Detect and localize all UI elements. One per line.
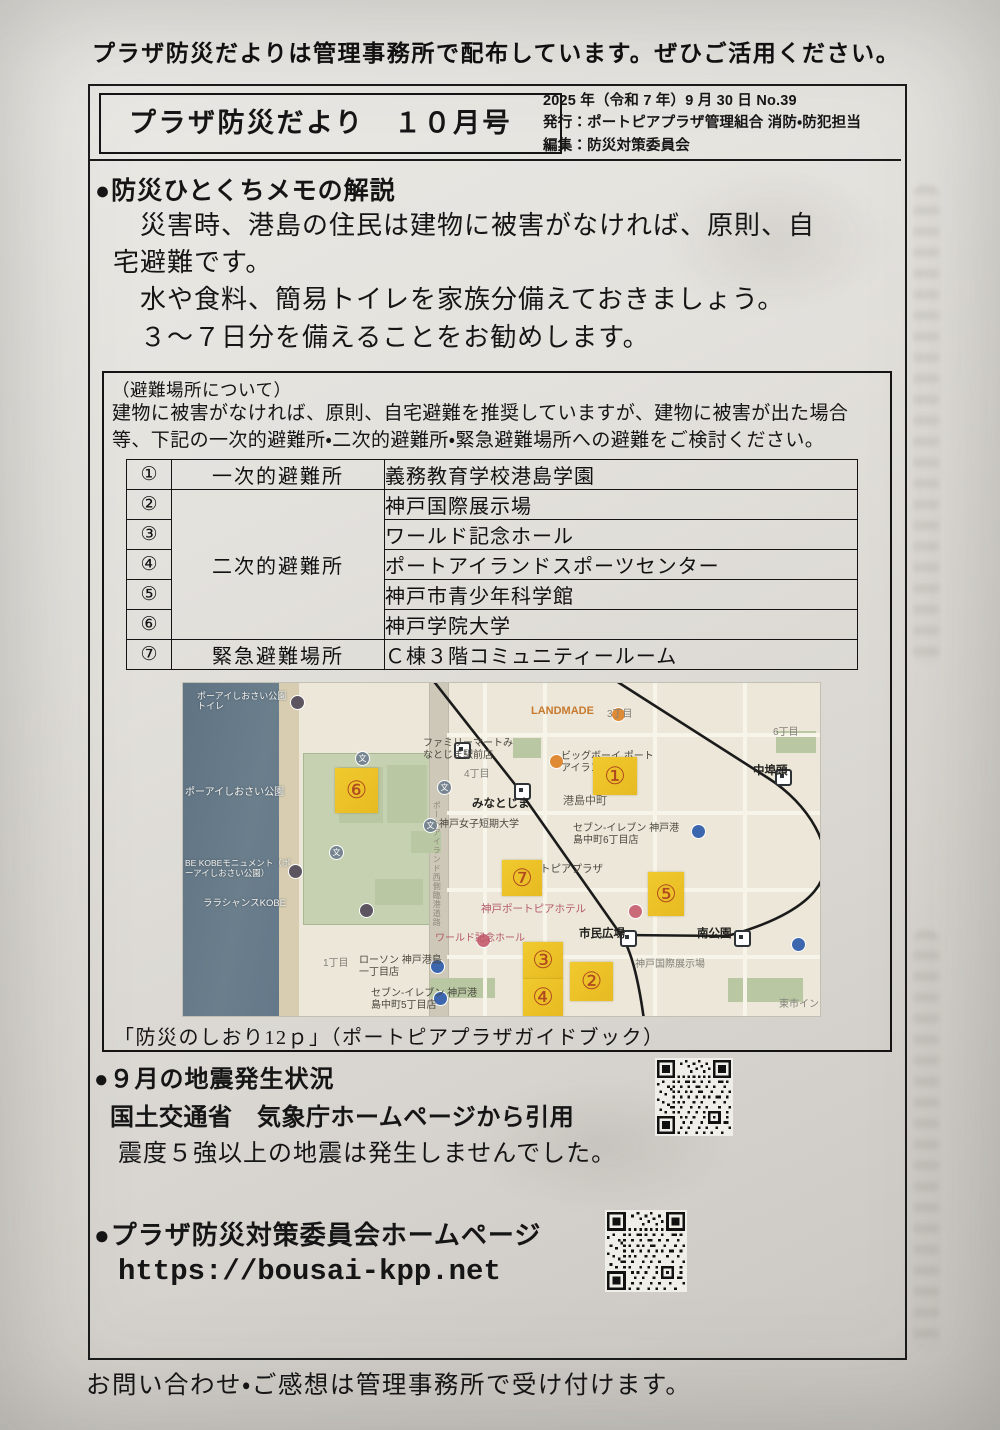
row-name: ワールド記念ホール: [385, 520, 858, 550]
map-label-shiosai-park: ポーアイしおさい公園: [185, 787, 284, 799]
newsletter-title: プラザ防災だより １０月号: [99, 93, 562, 154]
memo-line-1: 災害時、港島の住民は建物に被害がなければ、原則、自宅避難です。: [113, 207, 828, 281]
map-label-portopia-hotel: 神戸ポートピアホテル: [481, 903, 586, 915]
map-label-west-harbor-road: ポートアイランド西側臨港道路: [432, 801, 441, 961]
memo-line-3: ３～７日分を備えることをお勧めします。: [113, 319, 873, 356]
map-marker-7: ⑦: [502, 860, 542, 896]
row-number: ②: [127, 490, 172, 520]
row-category: 一次的避難所: [172, 460, 385, 490]
poi-icon: [791, 937, 806, 952]
row-number: ⑤: [127, 580, 172, 610]
qr-code-jma: [655, 1058, 733, 1136]
station-icon-minamikoen: [734, 930, 751, 947]
map-label-exhibition-hall: 神戸国際展示場: [635, 959, 705, 971]
portliner-rail-lines: [183, 683, 820, 1016]
evacuation-map: 文 文 文 文 ポーアイしおさい公園トイレ ポーアイしおさい公園 BE KOBE…: [183, 683, 820, 1016]
homepage-url: https://bousai-kpp.net: [118, 1255, 501, 1288]
memo-heading: ●防災ひとくちメモの解説: [95, 171, 396, 207]
earthquake-source: 国土交通省 気象庁ホームページから引用: [110, 1097, 574, 1132]
memo-line-2: 水や食料、簡易トイレを家族分備えておきましょう。: [113, 281, 873, 318]
evacuation-description: 建物に被害がなければ、原則、自宅避難を推奨していますが、建物に被害が出た場合等、…: [112, 401, 858, 455]
row-category: 二次的避難所: [172, 490, 385, 640]
map-label-4chome: 4丁目: [464, 769, 490, 781]
bleed-through-right-bottom: [913, 930, 939, 1350]
homepage-heading: ●プラザ防災対策委員会ホームページ: [94, 1215, 541, 1252]
map-marker-4: ④: [523, 979, 563, 1016]
map-marker-6: ⑥: [335, 768, 378, 813]
row-name: Ｃ棟３階コミュニティールーム: [385, 640, 858, 670]
row-name: 神戸市青少年科学館: [385, 580, 858, 610]
map-label-minamikoen-station: 南公園: [697, 928, 732, 941]
row-name: ポートアイランドスポーツセンター: [385, 550, 858, 580]
map-marker-1: ①: [593, 757, 637, 795]
table-row: ② 二次的避難所 神戸国際展示場: [127, 490, 858, 520]
venue-poi-icon: [359, 903, 374, 918]
map-label-minatojima-station: みなとじま: [472, 798, 530, 811]
row-category: 緊急避難場所: [172, 640, 385, 670]
map-label-world-hall: ワールド記念ホール: [435, 933, 525, 945]
row-number: ⑥: [127, 610, 172, 640]
issue-publisher: 発行：ポートピアプラザ管理組合 消防・防犯担当: [543, 112, 895, 134]
row-name: 神戸学院大学: [385, 610, 858, 640]
issue-editor: 編集：防災対策委員会: [543, 135, 895, 157]
map-label-lalachance: ララシャンスKOBE: [203, 899, 286, 910]
evacuation-table: ① 一次的避難所 義務教育学校港島学園 ② 二次的避難所 神戸国際展示場 ③ ワ…: [126, 459, 858, 670]
memo-body: 災害時、港島の住民は建物に被害がなければ、原則、自宅避難です。 水や食料、簡易ト…: [113, 207, 873, 356]
toilet-poi-icon: [290, 695, 305, 710]
row-number: ①: [127, 460, 172, 490]
qr-code-homepage: [605, 1210, 687, 1292]
hotel-poi-icon: [628, 904, 643, 919]
map-label-seveneleven-5chome: セブン-イレブン 神戸港島中町5丁目店: [371, 988, 483, 1011]
header-divider: [90, 159, 901, 161]
table-row: ⑦ 緊急避難場所 Ｃ棟３階コミュニティールーム: [127, 640, 858, 670]
map-label-landmade: LANDMADE: [531, 705, 594, 718]
row-name: 義務教育学校港島学園: [385, 460, 858, 490]
earthquake-heading: ●９月の地震発生状況: [94, 1059, 335, 1094]
school-icon: 文: [355, 751, 370, 766]
footer-note: お問い合わせ・ご感想は管理事務所で受け付けます。: [86, 1366, 691, 1401]
top-notice: プラザ防災だよりは管理事務所で配布しています。ぜひご活用ください。: [92, 34, 900, 68]
map-marker-3: ③: [523, 942, 563, 979]
bleed-through-right-top: [913, 185, 939, 665]
row-number: ④: [127, 550, 172, 580]
table-row: ① 一次的避難所 義務教育学校港島学園: [127, 460, 858, 490]
map-label-familymart: ファミリーマートみなとじま駅前店: [423, 738, 515, 761]
school-icon: 文: [437, 780, 452, 795]
map-marker-5: ⑤: [648, 872, 684, 916]
map-label-bekobe: BE KOBEモニュメント（ポーアイしおさい公園）: [185, 859, 295, 879]
map-label-womens-college: 神戸女子短期大学: [439, 819, 519, 831]
earthquake-body: 震度５強以上の地震は発生しませんでした。: [118, 1133, 616, 1168]
issue-info: 2025 年（令和 7 年）9 月 30 日 No.39 発行：ポートピアプラザ…: [543, 90, 895, 157]
map-label-6chome: 6丁目: [773, 727, 799, 739]
issue-date: 2025 年（令和 7 年）9 月 30 日 No.39: [543, 90, 895, 112]
newsletter-photo: プラザ防災だよりは管理事務所で配布しています。ぜひご活用ください。 プラザ防災だ…: [0, 0, 1000, 1430]
row-number: ③: [127, 520, 172, 550]
map-caption: 「防災のしおり12ｐ」（ポートピアプラザガイドブック）: [114, 1021, 665, 1050]
map-label-seveneleven-6chome: セブン-イレブン 神戸港島中町6丁目店: [573, 823, 683, 846]
row-number: ⑦: [127, 640, 172, 670]
map-label-shiminhiroba-station: 市民広場: [579, 928, 625, 941]
map-label-park-toilet: ポーアイしおさい公園トイレ: [197, 691, 292, 712]
seveneleven-poi-icon: [691, 824, 706, 839]
map-marker-2: ②: [570, 962, 613, 1001]
school-icon: 文: [329, 845, 344, 860]
map-label-1chome: 1丁目: [323, 958, 349, 970]
evacuation-subtitle: （避難場所について）: [112, 377, 291, 402]
map-label-east: 東市インテ: [779, 999, 820, 1011]
map-label-3chome: 3丁目: [607, 709, 633, 721]
map-label-nakafuto-station: 中埠頭: [753, 765, 788, 778]
row-name: 神戸国際展示場: [385, 490, 858, 520]
map-label-minatojima-nakamachi: 港島中町: [563, 795, 607, 808]
